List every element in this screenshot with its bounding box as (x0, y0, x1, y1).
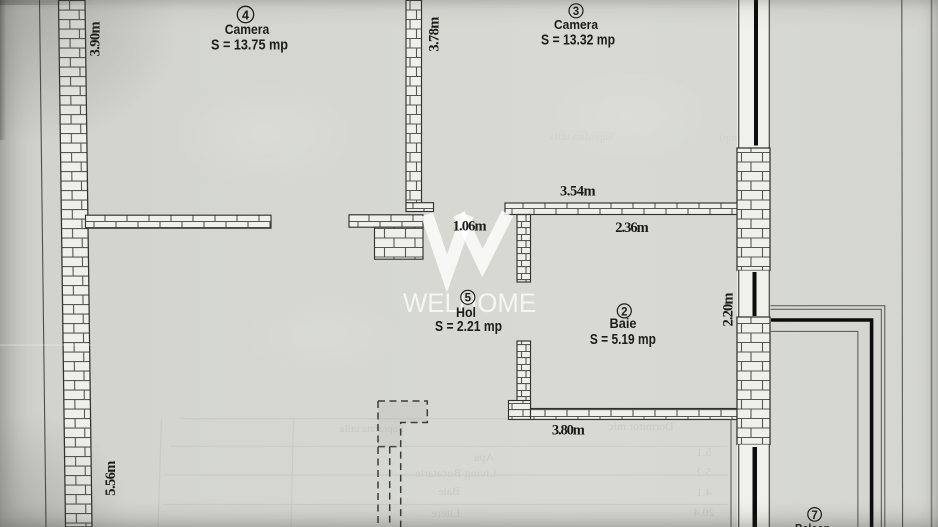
svg-text:Camera: Camera (225, 22, 270, 37)
svg-text:3.54m: 3.54m (560, 183, 596, 199)
svg-text:Baie: Baie (610, 316, 637, 331)
svg-text:(mp): (mp) (719, 132, 741, 144)
svg-text:20.4: 20.4 (694, 505, 715, 519)
svg-text:Camera: Camera (554, 17, 599, 32)
svg-text:3.78m: 3.78m (427, 17, 443, 52)
svg-text:5: 5 (465, 293, 472, 305)
svg-text:5.1: 5.1 (697, 445, 712, 459)
svg-text:S = 13.75 mp: S = 13.75 mp (211, 37, 288, 54)
svg-text:Balcon: Balcon (795, 521, 830, 527)
svg-text:4.1: 4.1 (697, 485, 712, 499)
svg-text:5.2: 5.2 (697, 465, 712, 479)
svg-text:2.36m: 2.36m (615, 220, 649, 236)
svg-text:3.90m: 3.90m (87, 21, 103, 56)
svg-text:1.06m: 1.06m (453, 218, 487, 234)
svg-text:Living/Bucatarie: Living/Bucatarie (415, 466, 496, 480)
svg-text:4: 4 (242, 8, 249, 22)
svg-text:5.56m: 5.56m (103, 461, 119, 496)
svg-text:Suprafata utila: Suprafata utila (340, 423, 405, 435)
svg-text:Litere: Litere (432, 506, 461, 520)
svg-text:3.80m: 3.80m (552, 423, 585, 439)
svg-text:7: 7 (811, 510, 817, 522)
svg-text:S = 2.21 mp: S = 2.21 mp (435, 319, 502, 335)
svg-text:S = 5.19 mp: S = 5.19 mp (590, 332, 656, 348)
svg-text:Suprafata utila: Suprafata utila (550, 131, 615, 143)
svg-text:Hol: Hol (456, 304, 476, 320)
svg-text:Baie: Baie (438, 484, 460, 498)
svg-text:2.20m: 2.20m (721, 293, 737, 327)
svg-text:S = 13.32 mp: S = 13.32 mp (541, 32, 615, 49)
svg-text:Apa: Apa (473, 450, 494, 464)
svg-text:Dormitor mic: Dormitor mic (608, 419, 674, 433)
